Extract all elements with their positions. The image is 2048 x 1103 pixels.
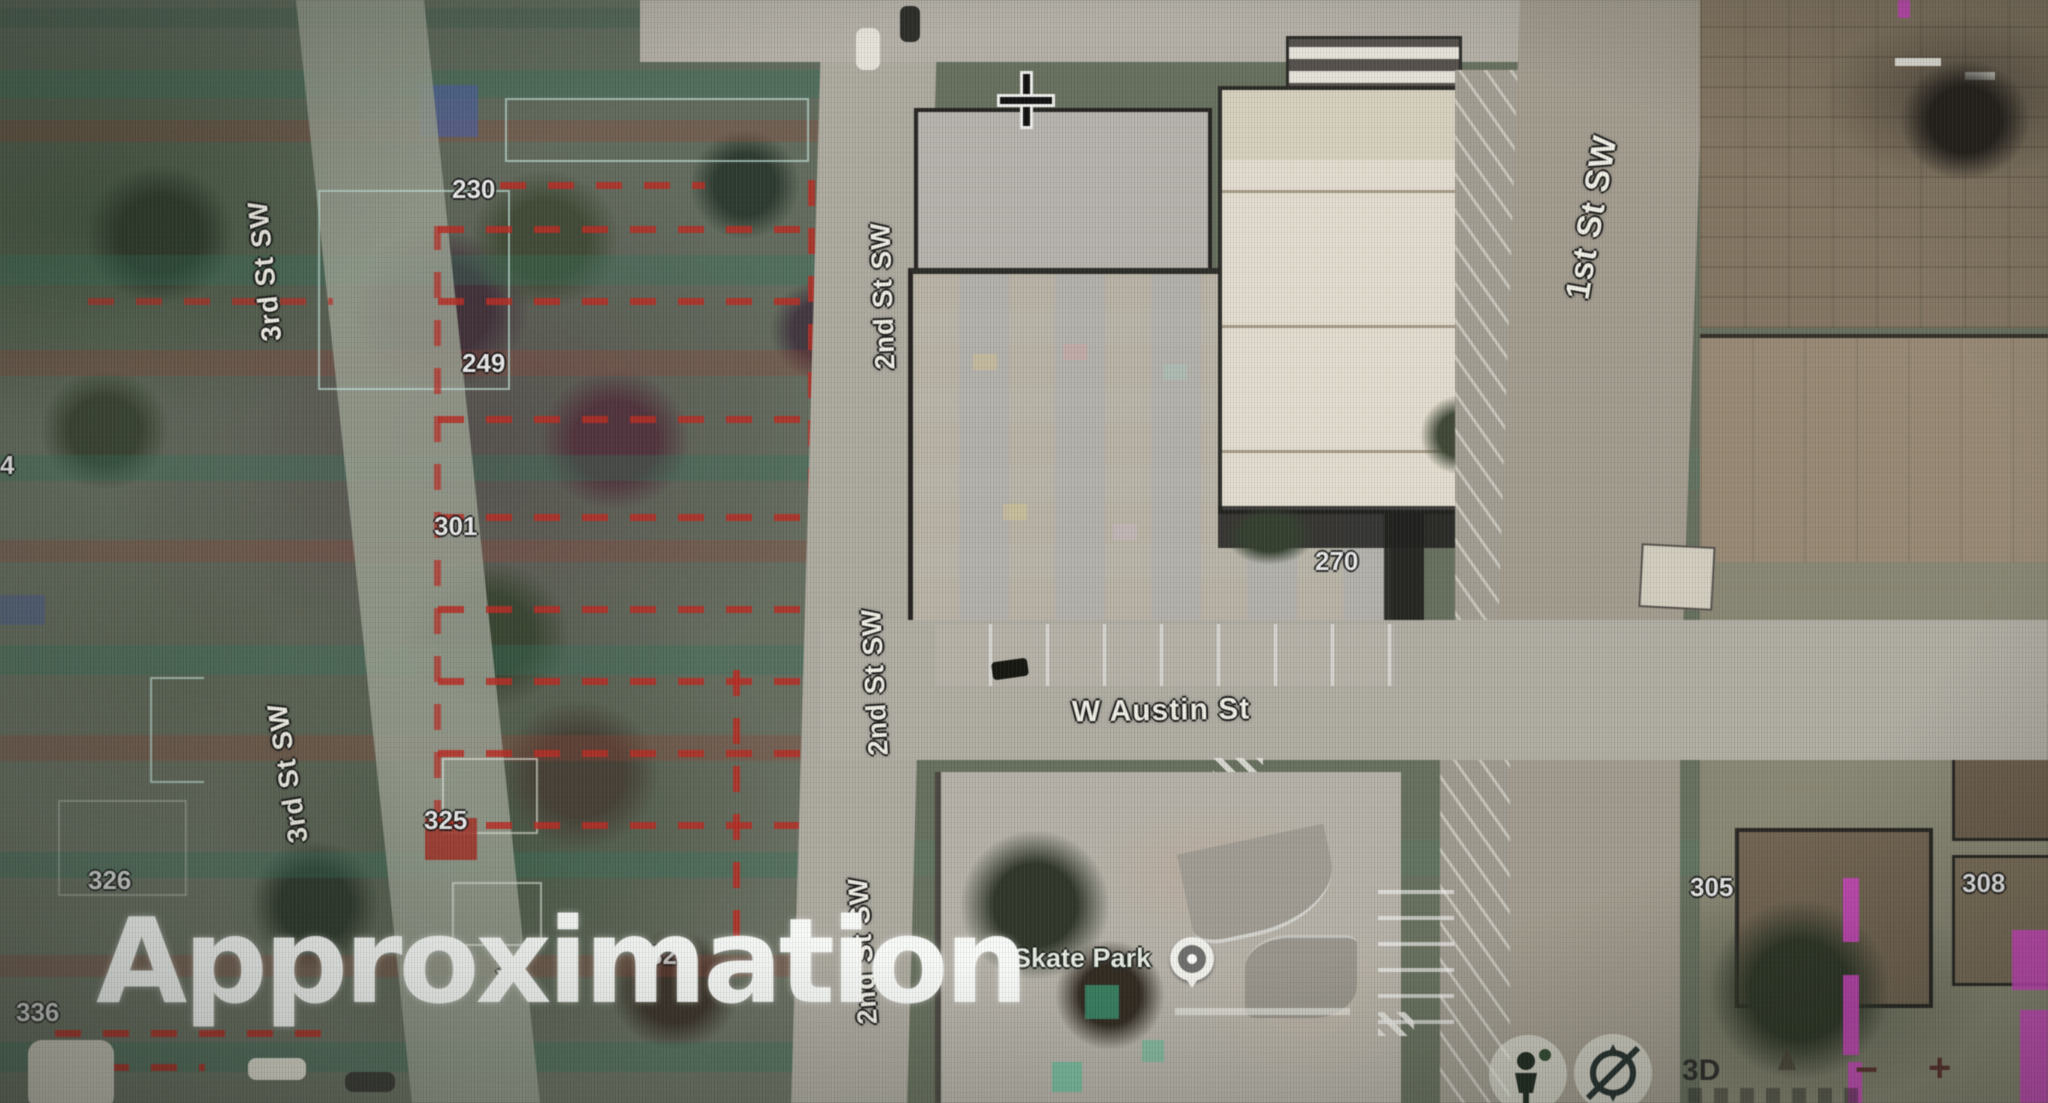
parcel-label: 4: [0, 450, 14, 481]
parcel-label: 230: [452, 174, 495, 205]
pegman-button[interactable]: [1489, 1035, 1567, 1103]
glitch-magenta: [1843, 975, 1859, 1055]
glitch-green-block: [1052, 1062, 1082, 1092]
glitch-magenta: [2012, 930, 2048, 990]
parcel-dash-red: [438, 678, 813, 685]
parcel-dash-red: [55, 1030, 333, 1037]
parcel-dash-red: [438, 822, 813, 829]
parcel-label: 305: [1690, 872, 1733, 903]
car: [856, 28, 880, 70]
tree: [1225, 505, 1315, 565]
crosswalk: [1378, 1012, 1414, 1036]
3d-mode-button[interactable]: 3D: [1682, 1054, 1720, 1088]
parcel-label: 336: [16, 997, 59, 1028]
tree: [540, 370, 690, 510]
poi-label-skate-park[interactable]: Skate Park: [1013, 943, 1151, 974]
car: [900, 6, 920, 42]
parcel-label: 308: [1962, 868, 2005, 899]
tree: [1900, 60, 2030, 180]
compass-icon: [1574, 1034, 1652, 1103]
parcel-dash-red: [438, 750, 813, 757]
parcel-label: 301: [434, 511, 477, 542]
parcel-outline: [150, 677, 204, 783]
parcel-outline: [505, 98, 809, 162]
building-small-roof: [1638, 543, 1715, 611]
map-canvas[interactable]: 3rd St SW 3rd St SW 2nd St SW 2nd St SW …: [0, 0, 2048, 1103]
parcel-dash-red: [438, 514, 813, 521]
skate-ramp: [1245, 935, 1357, 1018]
glitch-band: [0, 595, 45, 625]
building-roof-tan: [1700, 334, 2048, 566]
zoom-in-button[interactable]: +: [1928, 1053, 1951, 1083]
parcel-dash-red: [438, 606, 813, 613]
cone-icon: [1778, 1046, 1796, 1070]
parcel-dash-red: [438, 226, 813, 233]
glitch-magenta: [1843, 878, 1859, 942]
parcel-label: 249: [462, 348, 505, 379]
compass-button[interactable]: [1574, 1034, 1652, 1103]
parcel-dash-red: [438, 416, 813, 423]
zoom-out-button[interactable]: −: [1855, 1055, 1878, 1085]
parcel-dash-red: [88, 298, 333, 305]
glitch-magenta: [1898, 0, 1910, 18]
glitch-magenta: [2020, 1010, 2048, 1103]
parking-stalls: [1378, 882, 1454, 1024]
glitch-green-block: [1085, 985, 1119, 1019]
approximation-watermark: Approximation: [96, 892, 1025, 1030]
skate-park-poi-icon[interactable]: [1170, 937, 1214, 981]
car: [248, 1058, 306, 1080]
rooftop-corner: [28, 1040, 114, 1103]
glitch-green-block: [1142, 1040, 1164, 1062]
cutoff-text-smudge: [1688, 1088, 1868, 1103]
parcel-dash-red: [500, 182, 705, 189]
car: [345, 1072, 395, 1092]
parcel-dash-red: [438, 298, 813, 305]
street-label-austin: W Austin St: [1072, 692, 1251, 729]
roof-marking: [1895, 58, 1941, 66]
crosshair-icon: [1000, 74, 1052, 126]
pegman-icon: [1489, 1035, 1567, 1103]
building-roof: [914, 108, 1212, 274]
maps-app-screenshot: 3rd St SW 3rd St SW 2nd St SW 2nd St SW …: [0, 0, 2048, 1103]
skate-ramp-edge: [1175, 1008, 1350, 1015]
parcel-label: 325: [424, 805, 467, 836]
parcel-label: 270: [1315, 546, 1358, 577]
